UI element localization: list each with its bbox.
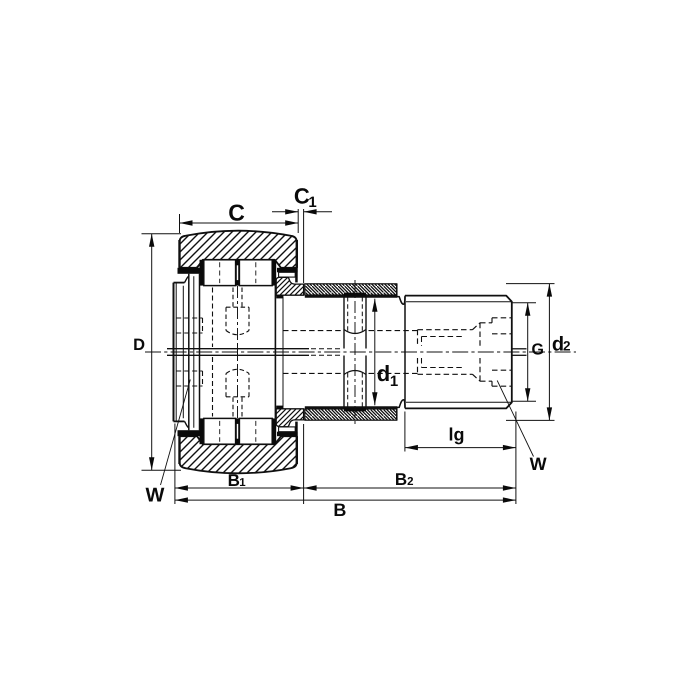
svg-text:G: G — [531, 342, 543, 359]
svg-text:B: B — [395, 470, 407, 489]
svg-text:B: B — [333, 500, 346, 520]
svg-text:W: W — [145, 485, 164, 507]
svg-text:C: C — [228, 199, 245, 225]
svg-text:1: 1 — [390, 373, 398, 390]
svg-text:2: 2 — [407, 476, 413, 488]
svg-text:d: d — [377, 361, 390, 386]
svg-text:D: D — [133, 336, 145, 354]
svg-text:W: W — [530, 454, 547, 474]
svg-text:B: B — [228, 471, 240, 490]
svg-text:1: 1 — [308, 194, 316, 211]
svg-text:2: 2 — [563, 339, 571, 354]
svg-text:lg: lg — [449, 425, 465, 445]
svg-text:1: 1 — [239, 477, 246, 489]
